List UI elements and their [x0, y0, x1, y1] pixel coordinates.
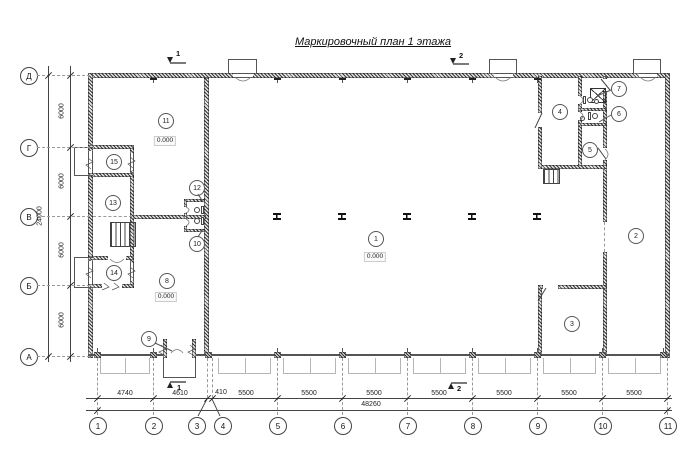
room-tag-6: 6	[611, 106, 627, 122]
elevation-mark: 0.000	[364, 252, 386, 262]
axis-extension	[472, 358, 473, 415]
axis-row-B: Б	[20, 277, 38, 295]
vestibule-14	[74, 287, 93, 288]
column-icon	[273, 213, 281, 220]
opening-lintel	[233, 73, 253, 74]
axis-line	[37, 356, 90, 357]
wall-room3-top	[538, 285, 543, 289]
room-tag-4: 4	[552, 104, 568, 120]
wall-pier-stem	[472, 348, 473, 352]
sink-icon	[594, 99, 599, 104]
wall-room15-bottom	[88, 173, 134, 177]
room-tag-12: 12	[189, 180, 205, 196]
axis-col-5: 5	[269, 417, 287, 435]
section-mark-2-top: 2	[459, 51, 463, 60]
opening-door	[167, 353, 192, 357]
window-bay-mullion	[440, 358, 441, 373]
axis-extension	[97, 358, 98, 415]
window-bay	[543, 358, 596, 374]
wall-top	[88, 73, 670, 78]
wall-pier-stem	[277, 348, 278, 352]
wall-wc-bottom	[184, 229, 205, 232]
axis-col-7: 7	[399, 417, 417, 435]
opening-jamb	[133, 263, 134, 280]
section-mark-1-bottom: 1	[177, 383, 181, 392]
drawing-title: Маркировочный план 1 этажа	[295, 36, 451, 48]
wall-room2-left	[603, 160, 607, 222]
opening-door	[108, 256, 126, 260]
toilet-icon	[588, 112, 598, 120]
canopy	[633, 59, 661, 60]
dim-label: 5500	[561, 390, 577, 397]
window-bay-mullion	[505, 358, 506, 373]
dim-label: 5500	[238, 390, 254, 397]
annotation-layer	[0, 0, 700, 474]
axis-col-4: 4	[214, 417, 232, 435]
window-bay	[283, 358, 336, 374]
wall-right	[665, 73, 670, 358]
wall-pier-stem	[97, 348, 98, 352]
room-tag-13: 13	[105, 195, 121, 211]
opening-jamb	[130, 263, 131, 280]
opening-jamb	[133, 153, 134, 170]
axis-col-2: 2	[145, 417, 163, 435]
toilet-icon	[583, 96, 593, 104]
vestibule-14	[74, 257, 75, 288]
wall-pier-stem	[342, 348, 343, 352]
leader-lines	[155, 90, 611, 351]
wall-pilaster	[537, 80, 538, 83]
wall-pier-stem	[153, 348, 154, 352]
room-tag-9: 9	[141, 331, 157, 347]
opening-jamb	[92, 261, 93, 284]
wall-pilaster	[153, 80, 154, 83]
window-bay	[608, 358, 661, 374]
wall-pier-stem	[407, 348, 408, 352]
axis-extension	[537, 358, 538, 415]
axis-col-3: 3	[188, 417, 206, 435]
wall-pier-stem	[663, 348, 664, 352]
dim-label: 410	[215, 389, 227, 396]
window-bay-mullion	[125, 358, 126, 373]
wall-sanitary-left	[578, 120, 582, 168]
dim-label: 6000	[59, 103, 66, 119]
opening-jamb	[130, 153, 131, 170]
section-mark-2-bottom: 2	[457, 384, 461, 393]
opening-lintel	[639, 73, 657, 74]
dim-label: 5500	[301, 390, 317, 397]
room-tag-14: 14	[106, 265, 122, 281]
axis-row-G: Г	[20, 139, 38, 157]
door-leaves	[535, 79, 610, 301]
wall-room2-opening-dashed	[604, 222, 605, 252]
window-bay-mullion	[635, 358, 636, 373]
floor-plan-canvas: Маркировочный план 1 этажа	[0, 0, 700, 474]
canopy	[489, 59, 517, 60]
wall-pilaster	[472, 80, 473, 83]
vestibule-14	[74, 257, 93, 258]
sink-icon	[580, 116, 585, 121]
wall-wc-left	[184, 199, 187, 207]
opening-jamb	[88, 261, 89, 284]
wall-wc-left	[184, 226, 187, 232]
column-icon	[533, 213, 541, 220]
wall-room4-left	[538, 76, 542, 113]
axis-extension	[153, 358, 154, 415]
window-bay	[413, 358, 466, 374]
axis-line	[37, 216, 90, 217]
opening-lintel	[639, 77, 657, 78]
dim-label: 6000	[59, 242, 66, 258]
dim-label: 5500	[626, 390, 642, 397]
opening-lintel	[494, 77, 513, 78]
canopy	[516, 59, 517, 74]
dim-line-left-outer	[48, 66, 49, 362]
axis-extension	[207, 358, 208, 398]
canopy	[660, 59, 661, 74]
wall-wc-left	[184, 213, 187, 219]
exterior-steps	[543, 169, 560, 184]
elevation-mark: 0.000	[154, 136, 176, 146]
wall-pier-stem	[537, 348, 538, 352]
wall-room2-left	[603, 76, 607, 79]
opening-lintel	[233, 77, 253, 78]
elevation-mark: 0.000	[155, 292, 177, 302]
room-tag-1: 1	[368, 231, 384, 247]
window-bay-mullion	[310, 358, 311, 373]
room-tag-5: 5	[582, 142, 598, 158]
column-icon	[403, 213, 411, 220]
axis-line	[37, 75, 90, 76]
column-icon	[468, 213, 476, 220]
dim-label: 4740	[117, 390, 133, 397]
window-bay	[348, 358, 401, 374]
window-bay	[100, 358, 150, 374]
axis-col-1: 1	[89, 417, 107, 435]
wall-pilaster	[342, 80, 343, 83]
canopy	[228, 59, 257, 60]
room-tag-3: 3	[564, 316, 580, 332]
section-flags	[167, 57, 469, 389]
axis-extension	[212, 358, 213, 398]
room-tag-2: 2	[628, 228, 644, 244]
wall-room4-left	[538, 127, 542, 169]
tambour-9-outer	[163, 377, 196, 378]
room-tag-8: 8	[159, 273, 175, 289]
dim-label: 5500	[431, 390, 447, 397]
wall-wc-top	[184, 199, 205, 202]
toilet-icon	[194, 206, 204, 214]
axis-row-A: А	[20, 348, 38, 366]
canopy	[256, 59, 257, 74]
axis-line	[37, 285, 90, 286]
canopy	[228, 59, 229, 74]
tambour-9-outer	[195, 358, 196, 378]
wall-room3-left	[538, 287, 542, 356]
window-bay-mullion	[245, 358, 246, 373]
wall-pier-stem	[602, 348, 603, 352]
axis-col-11: 11	[659, 417, 677, 435]
wall-pilaster	[277, 80, 278, 83]
window-bay	[218, 358, 271, 374]
wall-room7-6	[578, 108, 607, 111]
axis-col-9: 9	[529, 417, 547, 435]
canopy	[489, 59, 490, 74]
opening-jamb	[92, 151, 93, 173]
wall-pier-stem	[208, 348, 209, 352]
toilet-icon	[194, 217, 204, 225]
opening-jamb	[88, 151, 89, 173]
axis-col-8: 8	[464, 417, 482, 435]
axis-extension	[407, 358, 408, 415]
dim-label: 6000	[59, 173, 66, 189]
room-tag-7: 7	[611, 81, 627, 97]
dim-label-total: 48260	[361, 401, 380, 408]
column-icon	[338, 213, 346, 220]
dim-label: 5500	[366, 390, 382, 397]
room-tag-15: 15	[106, 154, 122, 170]
dim-label: 6000	[59, 312, 66, 328]
wall-tambour-right	[192, 339, 196, 358]
wall-room6-5	[578, 123, 607, 126]
room-tag-11: 11	[158, 113, 174, 129]
axis-row-D: Д	[20, 67, 38, 85]
vestibule-15	[74, 147, 75, 176]
wall-pier	[660, 352, 667, 358]
section-mark-1-top: 1	[176, 49, 180, 58]
staircase	[110, 222, 136, 247]
axis-col-10: 10	[594, 417, 612, 435]
axis-extension	[342, 358, 343, 415]
wall-room2-left	[603, 252, 607, 356]
vestibule-15	[74, 175, 93, 176]
window-bay	[478, 358, 531, 374]
wall-room15-top	[88, 145, 134, 149]
dim-line-bottom-outer	[86, 410, 672, 411]
axis-line	[37, 147, 90, 148]
dim-label: 5500	[496, 390, 512, 397]
axis-col-6: 6	[334, 417, 352, 435]
opening-lintel	[494, 73, 513, 74]
room-tag-10: 10	[189, 236, 205, 252]
dim-line-bottom-inner	[86, 398, 672, 399]
window-bay-mullion	[375, 358, 376, 373]
axis-line	[93, 216, 132, 217]
canopy	[633, 59, 634, 74]
axis-extension	[277, 358, 278, 415]
window-bay-mullion	[570, 358, 571, 373]
tambour-9-outer	[163, 358, 164, 378]
axis-extension	[602, 358, 603, 415]
wall-sanitary-left	[578, 76, 582, 96]
opening	[102, 284, 122, 288]
wall-room3-top	[558, 285, 607, 289]
wall-pilaster	[407, 80, 408, 83]
axis-row-V: В	[20, 208, 38, 226]
axis-extension	[667, 358, 668, 415]
